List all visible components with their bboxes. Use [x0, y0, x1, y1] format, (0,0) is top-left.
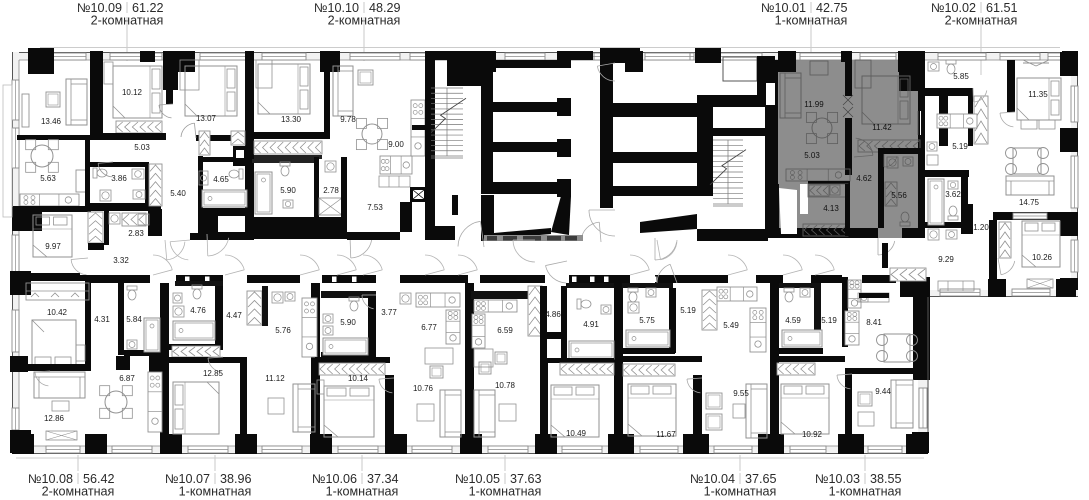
svg-text:6.59: 6.59 — [497, 326, 513, 335]
svg-text:1-комнатная: 1-комнатная — [829, 485, 902, 499]
svg-text:5.19: 5.19 — [821, 316, 837, 325]
svg-text:11.12: 11.12 — [265, 374, 285, 383]
svg-text:11.35: 11.35 — [1028, 90, 1048, 99]
svg-text:6.87: 6.87 — [119, 374, 135, 383]
svg-text:4.59: 4.59 — [785, 316, 801, 325]
svg-text:5.03: 5.03 — [134, 143, 150, 152]
svg-text:6.77: 6.77 — [421, 323, 437, 332]
svg-text:4.65: 4.65 — [213, 175, 229, 184]
svg-text:9.97: 9.97 — [45, 242, 61, 251]
svg-text:10.42: 10.42 — [47, 308, 68, 317]
svg-text:2.83: 2.83 — [128, 229, 144, 238]
svg-text:10.49: 10.49 — [566, 429, 587, 438]
svg-text:4.13: 4.13 — [823, 204, 839, 213]
svg-text:11.42: 11.42 — [872, 123, 892, 132]
svg-text:3.32: 3.32 — [113, 256, 129, 265]
svg-text:7.53: 7.53 — [367, 203, 383, 212]
svg-text:5.56: 5.56 — [891, 191, 907, 200]
svg-text:1-комнатная: 1-комнатная — [469, 485, 542, 499]
svg-text:10.12: 10.12 — [122, 88, 143, 97]
svg-text:13.07: 13.07 — [196, 114, 217, 123]
svg-text:12.86: 12.86 — [44, 414, 65, 423]
svg-text:5.75: 5.75 — [639, 316, 655, 325]
svg-text:5.03: 5.03 — [804, 151, 820, 160]
svg-text:3.62: 3.62 — [945, 190, 961, 199]
svg-text:13.30: 13.30 — [281, 115, 302, 124]
svg-text:4.76: 4.76 — [190, 306, 206, 315]
svg-text:5.19: 5.19 — [952, 142, 968, 151]
svg-text:5.90: 5.90 — [340, 318, 356, 327]
svg-text:9.44: 9.44 — [875, 387, 891, 396]
svg-text:9.55: 9.55 — [733, 389, 749, 398]
svg-text:2-комнатная: 2-комнатная — [42, 485, 115, 499]
svg-text:5.40: 5.40 — [170, 189, 186, 198]
svg-text:4.47: 4.47 — [226, 311, 242, 320]
svg-text:8.41: 8.41 — [866, 318, 882, 327]
svg-text:10.76: 10.76 — [413, 384, 434, 393]
svg-text:5.84: 5.84 — [126, 315, 142, 324]
svg-text:3.86: 3.86 — [111, 174, 127, 183]
svg-text:5.90: 5.90 — [280, 186, 296, 195]
svg-text:5.49: 5.49 — [723, 321, 739, 330]
svg-text:5.85: 5.85 — [953, 72, 969, 81]
svg-text:4.31: 4.31 — [94, 315, 110, 324]
svg-text:12.85: 12.85 — [203, 369, 224, 378]
svg-text:13.46: 13.46 — [41, 117, 62, 126]
svg-text:11.67: 11.67 — [656, 430, 676, 439]
svg-text:4.86: 4.86 — [545, 310, 561, 319]
svg-text:3.77: 3.77 — [381, 308, 397, 317]
svg-text:5.63: 5.63 — [40, 174, 56, 183]
svg-text:1-комнатная: 1-комнатная — [704, 485, 777, 499]
svg-text:4.91: 4.91 — [583, 320, 599, 329]
svg-text:10.26: 10.26 — [1032, 253, 1053, 262]
svg-text:1.20: 1.20 — [973, 223, 989, 232]
svg-text:4.62: 4.62 — [856, 174, 872, 183]
svg-text:10.14: 10.14 — [348, 374, 369, 383]
svg-text:2.78: 2.78 — [323, 186, 339, 195]
svg-text:11.99: 11.99 — [804, 100, 824, 109]
svg-text:5.19: 5.19 — [680, 306, 696, 315]
svg-text:9.00: 9.00 — [388, 140, 404, 149]
svg-text:5.76: 5.76 — [275, 326, 291, 335]
svg-text:10.78: 10.78 — [495, 381, 516, 390]
svg-text:1-комнатная: 1-комнатная — [326, 485, 399, 499]
svg-text:10.92: 10.92 — [802, 430, 823, 439]
svg-text:14.75: 14.75 — [1019, 198, 1040, 207]
svg-text:1-комнатная: 1-комнатная — [179, 485, 252, 499]
svg-text:9.78: 9.78 — [340, 115, 356, 124]
svg-text:9.29: 9.29 — [938, 255, 954, 264]
